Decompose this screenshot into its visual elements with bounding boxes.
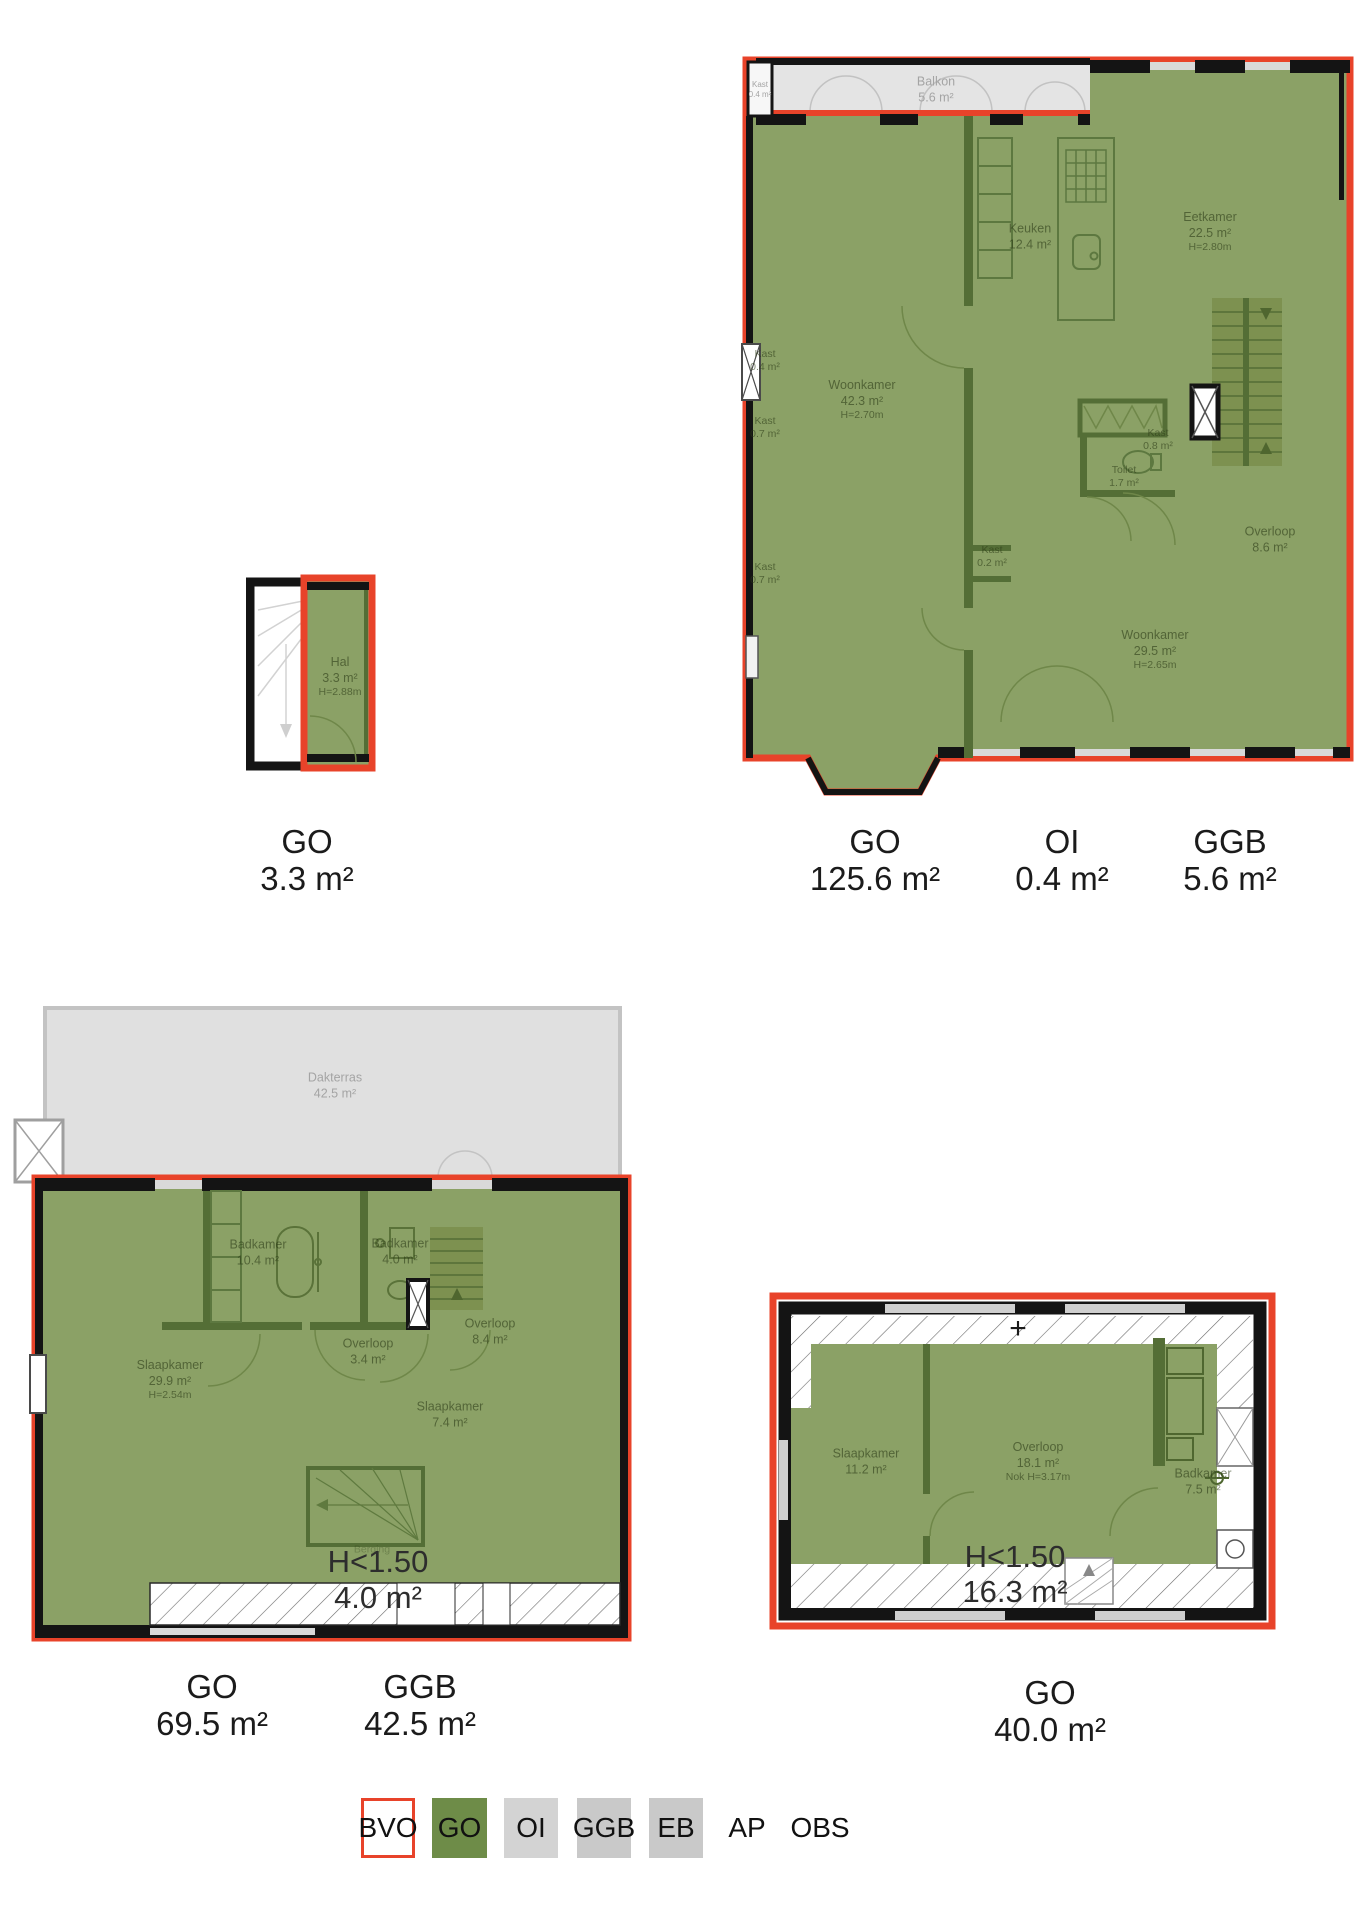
legend-item-go: GO [432,1798,487,1858]
stairs-icon [1212,298,1282,466]
room-label-kast-balkon: Kast 0.4 m² [749,80,772,100]
low-height-area-3e: 16.3 m² [962,1574,1067,1610]
stairs-icon [430,1227,483,1310]
room-label-toilet: Toilet 1.7 m² [1109,464,1139,490]
first-floor-plan-drawing [740,50,1358,810]
elevator-icon [1192,386,1218,438]
shower-icon [1217,1408,1253,1466]
room-label-kast-links-1: Kast 0.4 m² [750,348,780,374]
washer-icon [1217,1530,1253,1568]
room-label-kast-midden: Kast 0.2 m² [977,544,1007,570]
skylight-icon [15,1120,63,1182]
room-label-slaapkamer-groot: Slaapkamer 29.9 m² H=2.54m [137,1358,204,1402]
room-label-badkamer-groot: Badkamer 10.4 m² [230,1237,287,1268]
room-label-slaapkamer-klein: Slaapkamer 7.4 m² [417,1399,484,1430]
legend-item-ap: AP [720,1798,774,1858]
room-label-keuken: Keuken 12.4 m² [1009,221,1051,252]
total-second-floor-ggb: GGB 42.5 m² [364,1668,476,1742]
top-wall [35,1178,628,1191]
room-label-overloop-3e: Overloop 18.1 m² Nok H=3.17m [1006,1440,1071,1484]
plus-mark: + [1009,1312,1027,1346]
legend-item-eb: EB [649,1798,703,1858]
middle-stairs-icon [308,1468,423,1545]
total-first-floor-go: GO 125.6 m² [810,823,940,897]
room-label-kast-trap: Kast 0.8 m² [1143,427,1173,453]
room-label-overloop-groot: Overloop 8.4 m² [465,1316,516,1347]
total-first-floor-ggb: GGB 5.6 m² [1183,823,1277,897]
stair-hatch-icon [1065,1558,1113,1604]
total-second-floor-go: GO 69.5 m² [156,1668,268,1742]
room-label-hal: Hal 3.3 m² H=2.88m [319,655,362,699]
total-top-floor-go: GO 40.0 m² [994,1674,1106,1748]
room-label-woonkamer-achter: Woonkamer 29.5 m² H=2.65m [1121,628,1188,672]
elevator-icon [408,1280,428,1328]
room-label-overloop-1e: Overloop 8.6 m² [1245,524,1296,555]
room-label-dakterras: Dakterras 42.5 m² [308,1070,362,1101]
legend-item-oi: OI [504,1798,558,1858]
room-label-balkon: Balkon 5.6 m² [917,74,955,105]
legend-item-obs: OBS [792,1798,848,1858]
room-label-kast-links-2: Kast 0.7 m² [750,415,780,441]
low-height-label-2e: H<1.50 [328,1544,429,1580]
room-label-badkamer-klein: Badkamer 4.0 m² [372,1236,429,1267]
room-label-kast-links-3: Kast 0.7 m² [750,561,780,587]
room-label-eetkamer: Eetkamer 22.5 m² H=2.80m [1183,210,1237,254]
legend-item-bvo: BVO [361,1798,415,1858]
low-height-label-3e: H<1.50 [965,1539,1066,1575]
room-label-slaapkamer-3e: Slaapkamer 11.2 m² [833,1446,900,1477]
legend-item-ggb: GGB [577,1798,631,1858]
bottom-wall [35,1625,628,1638]
room-label-woonkamer-voor: Woonkamer 42.3 m² H=2.70m [828,378,895,422]
floorplan-sheet: Hal 3.3 m² H=2.88m GO 3.3 m² [0,0,1358,1920]
room-label-badkamer-3e: Badkamer 7.5 m² [1175,1466,1232,1497]
low-height-area-2e: 4.0 m² [334,1580,422,1616]
total-first-floor-oi: OI 0.4 m² [1015,823,1109,897]
room-label-overloop-klein: Overloop 3.4 m² [343,1336,394,1367]
total-hal-go: GO 3.3 m² [260,823,354,897]
